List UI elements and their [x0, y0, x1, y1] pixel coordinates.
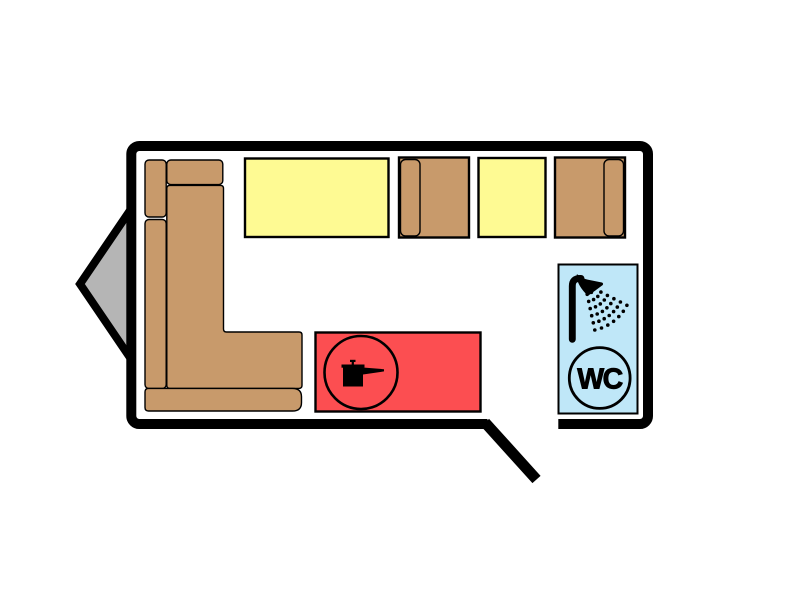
- svg-text:WC: WC: [577, 363, 622, 395]
